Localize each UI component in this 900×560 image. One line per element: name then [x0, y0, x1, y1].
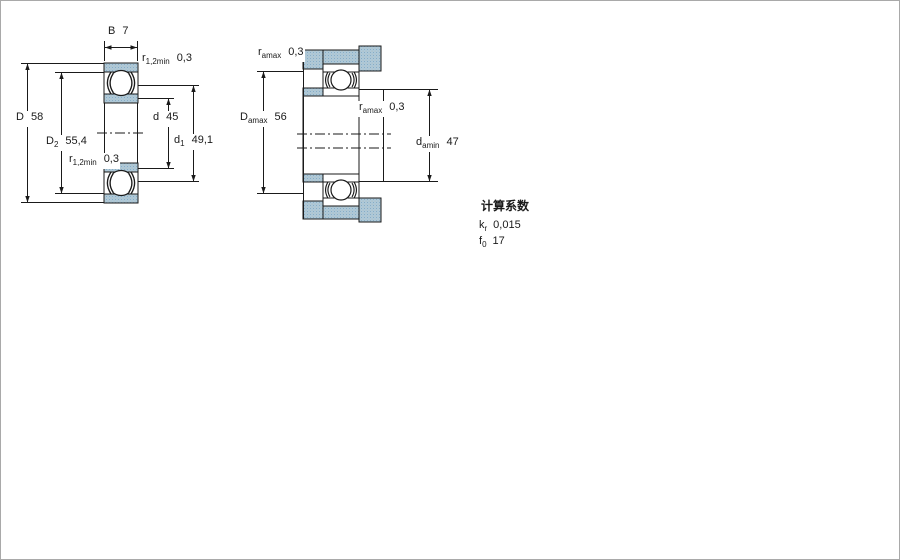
dim-subscript: 2 [54, 140, 58, 149]
bearing-dimension-drawing: B7 r1,2min0,3 D58 D255,4 r1,2min0,3 d45 … [0, 0, 900, 560]
dim-subscript: amax [363, 106, 383, 115]
dim-value: 49,1 [192, 134, 213, 146]
bearing-section-top [104, 63, 138, 103]
housing-right [359, 46, 381, 71]
shaft-under-bearing [323, 206, 359, 219]
arrow-down [25, 196, 29, 203]
shoulder-top-left [303, 88, 323, 96]
dim-Damax-lines [257, 72, 303, 194]
housing-over-bearing [323, 50, 359, 64]
bearing-section-top [323, 64, 359, 96]
dim-label-D: D58 [15, 111, 44, 127]
dim-subscript: 1,2min [146, 57, 170, 66]
arrow-right [131, 45, 138, 49]
calc-factor-f0: f017 [479, 235, 505, 251]
dim-value: 0,3 [288, 46, 303, 58]
dim-d-lines [138, 99, 174, 169]
shaft-body [303, 96, 359, 174]
dim-value: 0,3 [104, 153, 119, 165]
dim-symbol: D [16, 111, 24, 123]
dim-label-d: d45 [152, 111, 179, 127]
factor-value: 0,015 [493, 219, 521, 231]
arrow-down [427, 175, 431, 182]
dim-B-lines [105, 41, 138, 61]
dim-symbol: D [46, 135, 54, 147]
dim-label-ramax-mid: ramax0,3 [358, 101, 406, 117]
dim-subscript: amax [262, 51, 282, 60]
dim-symbol: d [153, 111, 159, 123]
arrow-up [25, 64, 29, 71]
dim-value: 47 [446, 136, 458, 148]
ball [331, 70, 351, 90]
ball [331, 180, 351, 200]
arrow-up [166, 99, 170, 106]
right-mounting-view [257, 46, 438, 222]
dim-label-B: B7 [107, 25, 129, 41]
calc-factor-kr: kr0,015 [479, 219, 521, 235]
factor-subscript: 0 [482, 240, 486, 249]
dim-value: 0,3 [177, 52, 192, 64]
dim-value: 56 [275, 111, 287, 123]
dim-label-ramax-top: ramax0,3 [257, 46, 305, 62]
arrow-up [427, 90, 431, 97]
dim-D2-lines [55, 73, 104, 194]
dim-value: 0,3 [389, 101, 404, 113]
arrow-down [191, 175, 195, 182]
arrow-down [261, 187, 265, 194]
factor-subscript: r [485, 224, 488, 233]
dim-label-D2: D255,4 [45, 135, 88, 151]
arrow-down [59, 187, 63, 194]
dim-subscript: amin [422, 141, 439, 150]
dim-label-damin: damin47 [415, 136, 460, 152]
arrow-down [166, 162, 170, 169]
dim-label-r12min-top: r1,2min0,3 [141, 52, 193, 68]
drawing-canvas [1, 1, 899, 559]
arrow-up [261, 72, 265, 79]
dim-label-d1: d149,1 [173, 134, 214, 150]
arrow-up [59, 73, 63, 80]
dim-subscript: amax [248, 116, 268, 125]
dim-label-r12min-bottom: r1,2min0,3 [68, 153, 120, 169]
dim-value: 7 [122, 25, 128, 37]
shaft-right [359, 198, 381, 222]
dim-symbol: D [240, 111, 248, 123]
calculation-factors-title: 计算系数 [481, 197, 529, 214]
arrow-up [191, 86, 195, 93]
dim-subscript: 1,2min [73, 158, 97, 167]
dim-symbol: B [108, 25, 115, 37]
dim-label-Damax: Damax56 [239, 111, 288, 127]
shaft-left [303, 201, 323, 219]
arrow-left [105, 45, 112, 49]
shoulder-bottom-left [303, 174, 323, 182]
dim-value: 45 [166, 111, 178, 123]
factor-value: 17 [493, 235, 505, 247]
dim-D-lines [21, 64, 104, 203]
dim-value: 58 [31, 111, 43, 123]
dim-subscript: 1 [180, 139, 184, 148]
housing-left [303, 50, 323, 69]
dim-value: 55,4 [65, 135, 86, 147]
bearing-section-bottom [323, 174, 359, 206]
